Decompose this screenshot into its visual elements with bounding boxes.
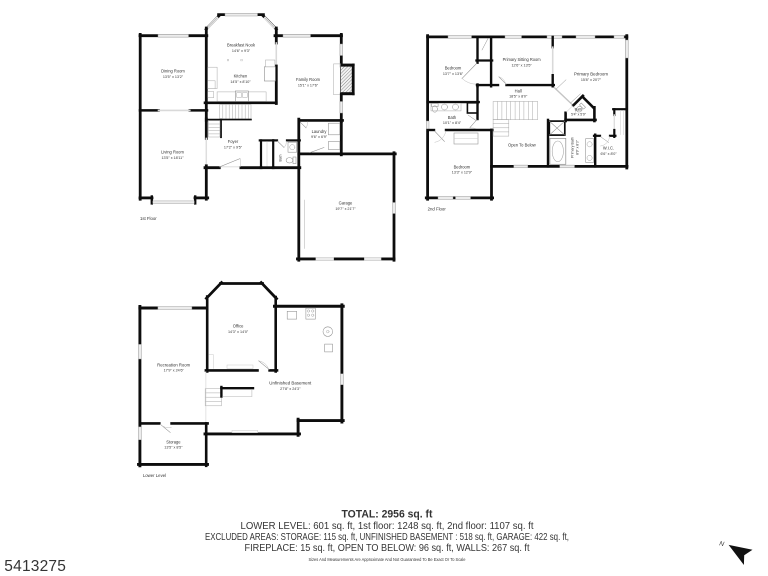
- svg-text:5'4" x 5'9": 5'4" x 5'9": [571, 112, 587, 116]
- svg-text:1st Floor: 1st Floor: [140, 216, 157, 221]
- svg-text:Bath: Bath: [279, 154, 283, 161]
- svg-text:TOTAL: 2956 sq. ft: TOTAL: 2956 sq. ft: [342, 509, 433, 521]
- svg-text:Office: Office: [233, 323, 244, 328]
- svg-text:Primary Bedroom: Primary Bedroom: [574, 72, 609, 77]
- svg-text:Storage: Storage: [166, 439, 181, 444]
- svg-text:Primary Bath: Primary Bath: [571, 137, 575, 158]
- svg-text:Family Room: Family Room: [296, 77, 321, 82]
- svg-text:8'9" x 8'0": 8'9" x 8'0": [575, 139, 579, 155]
- svg-text:Kitchen: Kitchen: [234, 73, 248, 78]
- svg-text:17'2" x 9'5": 17'2" x 9'5": [224, 145, 243, 149]
- svg-text:FIREPLACE: 15 sq. ft, OPEN TO: FIREPLACE: 15 sq. ft, OPEN TO BELOW: 96 …: [245, 543, 530, 554]
- svg-text:Living Room: Living Room: [161, 149, 184, 154]
- svg-text:19'7" x 21'7": 19'7" x 21'7": [335, 207, 356, 211]
- svg-text:Primary Sitting Room: Primary Sitting Room: [503, 57, 542, 62]
- svg-text:Dining Room: Dining Room: [161, 68, 185, 73]
- svg-text:Breakfast Nook: Breakfast Nook: [227, 42, 256, 47]
- svg-text:13'5" x 8'5": 13'5" x 8'5": [164, 446, 183, 450]
- svg-text:Lower Level: Lower Level: [143, 473, 166, 478]
- svg-text:10'1" x 8'4": 10'1" x 8'4": [443, 121, 462, 125]
- svg-text:14'6" x 9'3": 14'6" x 9'3": [232, 49, 251, 53]
- svg-text:5413275: 5413275: [4, 558, 66, 575]
- svg-text:15'1" x 17'6": 15'1" x 17'6": [298, 83, 319, 87]
- svg-text:Bath: Bath: [448, 115, 457, 120]
- svg-text:Open To Below: Open To Below: [508, 143, 536, 148]
- svg-text:Unfinished Basement: Unfinished Basement: [269, 381, 312, 386]
- svg-text:2nd Floor: 2nd Floor: [428, 207, 447, 212]
- svg-text:13'3" x 12'9": 13'3" x 12'9": [452, 171, 473, 175]
- svg-text:Laundry: Laundry: [312, 129, 328, 134]
- svg-text:Sizes And Measurements Are App: Sizes And Measurements Are Approximate A…: [309, 557, 466, 562]
- svg-text:13'7" x 13'6": 13'7" x 13'6": [443, 72, 464, 76]
- svg-text:Foyer: Foyer: [228, 139, 239, 144]
- svg-text:14'3" x 14'0": 14'3" x 14'0": [228, 330, 249, 334]
- svg-text:13'5" x 18'11": 13'5" x 18'11": [162, 156, 185, 160]
- svg-text:Garage: Garage: [339, 200, 353, 205]
- svg-text:14'5" x 8'10": 14'5" x 8'10": [230, 80, 251, 84]
- svg-text:W.I.C.: W.I.C.: [603, 146, 614, 151]
- svg-text:Bedroom: Bedroom: [454, 164, 471, 169]
- svg-text:EXCLUDED AREAS: STORAGE: 115 s: EXCLUDED AREAS: STORAGE: 115 sq. ft, UNF…: [205, 532, 569, 543]
- svg-text:9'6" x 6'9": 9'6" x 6'9": [311, 135, 328, 139]
- svg-text:Bedroom: Bedroom: [445, 66, 462, 71]
- svg-text:13'5" x 13'2": 13'5" x 13'2": [163, 75, 184, 79]
- svg-text:15'8" x 20'7": 15'8" x 20'7": [581, 78, 602, 82]
- svg-text:LOWER LEVEL: 601 sq. ft, 1st f: LOWER LEVEL: 601 sq. ft, 1st floor: 1248…: [241, 521, 534, 532]
- svg-text:18'5" x 8'0": 18'5" x 8'0": [509, 95, 528, 99]
- svg-text:Hall: Hall: [515, 88, 522, 93]
- svg-text:17'9" x 24'6": 17'9" x 24'6": [164, 369, 185, 373]
- svg-text:12'6" x 13'5": 12'6" x 13'5": [511, 64, 532, 68]
- svg-text:6'6" x 8'0": 6'6" x 8'0": [600, 152, 617, 156]
- svg-text:Bath: Bath: [575, 108, 582, 112]
- svg-text:27'8" x 24'3": 27'8" x 24'3": [280, 387, 301, 391]
- svg-text:Recreation Room: Recreation Room: [157, 362, 191, 367]
